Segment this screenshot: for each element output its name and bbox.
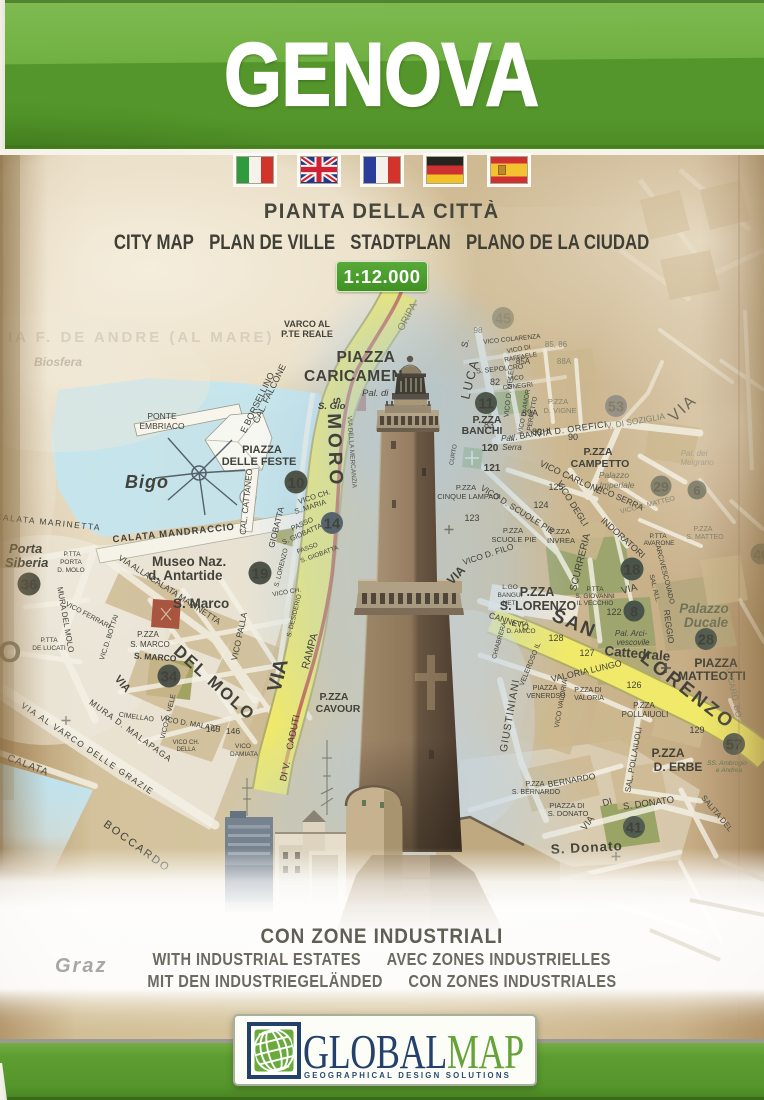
svg-text:Museo Naz.: Museo Naz. [152, 554, 226, 569]
svg-text:128: 128 [548, 633, 563, 643]
svg-text:88A: 88A [557, 357, 572, 366]
svg-text:6: 6 [693, 483, 700, 498]
svg-text:VALORIA: VALORIA [574, 695, 604, 702]
svg-text:DAMIATA: DAMIATA [230, 751, 259, 758]
svg-text:P.TTA: P.TTA [649, 533, 667, 540]
svg-text:PIAZZA: PIAZZA [242, 444, 282, 456]
svg-text:SCUOLE PIE: SCUOLE PIE [491, 535, 536, 544]
svg-text:L.GO: L.GO [502, 584, 518, 591]
svg-text:P.ZZA: P.ZZA [633, 701, 655, 710]
svg-text:18: 18 [624, 562, 641, 579]
svg-text:19: 19 [252, 566, 269, 583]
svg-text:AVARONE: AVARONE [644, 540, 675, 547]
svg-text:53: 53 [608, 400, 624, 416]
svg-text:10: 10 [288, 475, 305, 492]
svg-text:INVREA: INVREA [547, 536, 575, 545]
svg-text:Pal.: Pal. [501, 434, 515, 443]
svg-text:P.ZZA: P.ZZA [137, 630, 159, 639]
svg-text:P.ZZA: P.ZZA [456, 483, 476, 492]
svg-text:126: 126 [626, 680, 641, 690]
svg-text:11: 11 [478, 397, 493, 413]
svg-text:14: 14 [324, 517, 340, 533]
svg-text:S. BERNARDO: S. BERNARDO [512, 789, 561, 796]
svg-text:PIAZZA: PIAZZA [337, 349, 396, 366]
svg-text:P.TE REALE: P.TE REALE [281, 329, 333, 339]
svg-text:PORTA: PORTA [60, 559, 82, 566]
svg-text:Pal. Arci-: Pal. Arci- [615, 629, 647, 638]
svg-text:P.ZZA: P.ZZA [526, 781, 545, 788]
svg-text:IL VECCHIO: IL VECCHIO [577, 600, 614, 607]
svg-text:PIAZZA: PIAZZA [533, 685, 558, 692]
svg-text:D. MOLO: D. MOLO [57, 567, 84, 574]
svg-text:P.ZZA DI: P.ZZA DI [574, 687, 602, 694]
svg-text:P.TTA: P.TTA [586, 586, 604, 593]
svg-text:EMBRIACO: EMBRIACO [139, 421, 185, 431]
svg-text:CAMPETTO: CAMPETTO [571, 458, 630, 470]
svg-text:Pal. di: Pal. di [362, 388, 389, 399]
svg-text:121: 121 [484, 463, 501, 474]
svg-text:CAVOUR: CAVOUR [316, 703, 361, 715]
svg-text:S. DONATO: S. DONATO [548, 809, 589, 818]
svg-text:122: 122 [606, 607, 621, 617]
svg-text:P.ZZA: P.ZZA [584, 446, 613, 458]
svg-text:POLLAIUOLI: POLLAIUOLI [622, 710, 669, 719]
svg-text:VICO CH.: VICO CH. [173, 740, 200, 746]
svg-text:145: 145 [206, 724, 220, 734]
svg-text:DELLE FESTE: DELLE FESTE [222, 456, 297, 468]
svg-text:41: 41 [626, 821, 642, 837]
svg-text:146: 146 [226, 726, 240, 736]
svg-text:VARCO AL: VARCO AL [284, 319, 331, 329]
svg-text:120: 120 [482, 443, 499, 454]
svg-text:D. AMICO: D. AMICO [506, 628, 535, 635]
svg-text:Palazzo: Palazzo [599, 470, 630, 480]
svg-text:VICO: VICO [235, 743, 251, 750]
svg-text:CINQUE LAMPADI: CINQUE LAMPADI [437, 492, 501, 501]
svg-text:Serra: Serra [502, 443, 522, 452]
svg-text:P.TTA: P.TTA [63, 551, 81, 558]
svg-text:34: 34 [161, 669, 178, 686]
svg-text:P.ZZA: P.ZZA [503, 526, 523, 535]
svg-text:124: 124 [533, 500, 548, 510]
svg-text:P.TTA: P.TTA [511, 621, 529, 628]
svg-text:VENERDSO: VENERDSO [526, 693, 566, 700]
svg-text:127: 127 [579, 648, 594, 658]
svg-text:85A: 85A [516, 357, 531, 366]
svg-text:MORO: MORO [323, 413, 347, 489]
svg-text:Bigo: Bigo [125, 472, 169, 492]
svg-text:BANCHI: BANCHI [462, 425, 503, 437]
svg-text:P.ZZA: P.ZZA [550, 527, 570, 536]
svg-text:29: 29 [653, 479, 669, 495]
svg-text:P.ZZA: P.ZZA [651, 746, 684, 760]
svg-text:DELLA: DELLA [176, 747, 195, 753]
svg-text:45: 45 [495, 312, 511, 328]
svg-text:P.ZZA: P.ZZA [548, 397, 568, 406]
svg-text:8: 8 [630, 604, 638, 620]
svg-text:123: 123 [464, 513, 479, 523]
svg-text:82: 82 [490, 377, 500, 387]
svg-text:S. MARCO: S. MARCO [130, 640, 170, 649]
svg-text:D. VIGNE: D. VIGNE [544, 406, 577, 415]
svg-text:P.ZZA: P.ZZA [520, 585, 555, 599]
svg-text:CARICAMEN: CARICAMEN [304, 368, 403, 385]
svg-text:85, 86: 85, 86 [545, 340, 568, 349]
svg-text:PONTE: PONTE [147, 411, 177, 421]
svg-text:D. ERBE: D. ERBE [654, 760, 703, 774]
svg-text:98: 98 [474, 326, 483, 335]
svg-text:P.ZZA: P.ZZA [320, 691, 349, 703]
svg-text:S. GIOVANNI: S. GIOVANNI [575, 593, 614, 600]
